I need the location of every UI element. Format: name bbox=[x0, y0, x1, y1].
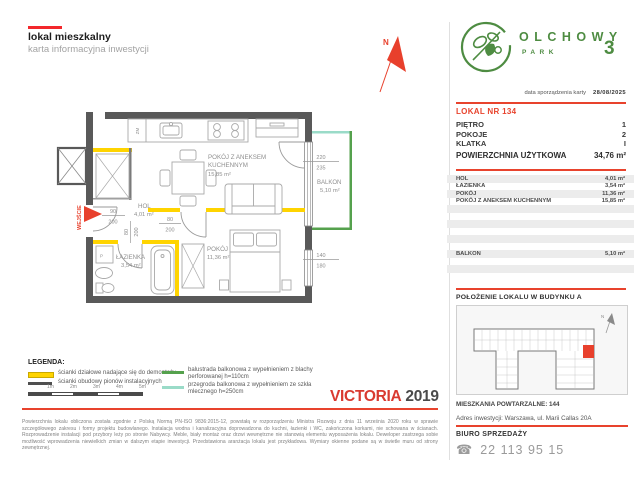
scale-bar-segment bbox=[51, 392, 74, 396]
unit-attributes: PIĘTRO 1 POKOJE 2 KLATKA I bbox=[456, 120, 626, 149]
rule bbox=[456, 425, 628, 427]
bath-label: ŁAZIENKA bbox=[116, 255, 145, 261]
table-row: ŁAZIENKA3,54 m² bbox=[447, 183, 634, 191]
table-row-empty bbox=[447, 265, 634, 273]
location-title: POŁOŻENIE LOKALU W BUDYNKU A bbox=[456, 294, 582, 301]
bedroom-window bbox=[305, 250, 313, 286]
balcony-area: 5,10 m² bbox=[320, 188, 340, 194]
phone-row: ☎22 113 95 15 bbox=[456, 442, 564, 458]
bedroom-wardrobe bbox=[182, 244, 204, 288]
brand-park: PARK bbox=[522, 49, 558, 56]
table-row-empty bbox=[447, 220, 634, 228]
north-label: N bbox=[383, 38, 389, 47]
chair bbox=[180, 150, 196, 160]
date-row: data sporządzenia karty28/08/2025 bbox=[440, 90, 626, 96]
investment-address: Adres inwestycji: Warszawa, ul. Marii Ca… bbox=[456, 415, 592, 422]
nightstand bbox=[282, 280, 291, 290]
table-row-empty bbox=[447, 205, 634, 213]
chair bbox=[160, 170, 170, 186]
scale-label: 3m bbox=[93, 384, 100, 390]
room-area-table: HOL4,01 m² ŁAZIENKA3,54 m² POKÓJ11,36 m²… bbox=[447, 175, 634, 280]
balcony-partition-cyan bbox=[312, 131, 352, 134]
attr-value: I bbox=[624, 139, 626, 149]
table-row-empty bbox=[447, 228, 634, 236]
dishwasher-label: ZM bbox=[135, 128, 140, 135]
bathtub bbox=[151, 246, 174, 294]
sales-office-label: BIURO SPRZEDAŻY bbox=[456, 431, 527, 438]
dim-bedroom-door: 80 200 bbox=[159, 217, 181, 234]
entrance-arrow-icon bbox=[84, 206, 102, 222]
svg-text:80: 80 bbox=[124, 229, 130, 235]
attr-row: POKOJE 2 bbox=[456, 130, 626, 140]
attr-label: POKOJE bbox=[456, 130, 487, 140]
table-row-empty bbox=[447, 273, 634, 281]
installation-shaft bbox=[58, 148, 86, 184]
bath-area: 3,54 m² bbox=[121, 263, 141, 269]
attr-row: KLATKA I bbox=[456, 139, 626, 149]
unit-number: LOKAL NR 134 bbox=[456, 107, 516, 116]
balcony-rail-bottom bbox=[312, 228, 352, 231]
attr-value: 2 bbox=[622, 130, 626, 140]
scale-bar-segment bbox=[120, 392, 143, 396]
legend-item: przegroda balkonowa z wypełnieniem ze sz… bbox=[188, 382, 340, 396]
developer-logo: VICTORIA2019 bbox=[330, 388, 439, 406]
scale-bar-segment bbox=[97, 392, 120, 396]
washer-label: P bbox=[100, 254, 103, 259]
scale-label: 4m bbox=[116, 384, 123, 390]
svg-text:200: 200 bbox=[134, 227, 140, 236]
pillow bbox=[257, 233, 277, 246]
svg-text:220: 220 bbox=[316, 155, 325, 161]
rule bbox=[22, 408, 438, 410]
svg-text:200: 200 bbox=[165, 228, 174, 234]
scale-label: 1m bbox=[47, 384, 54, 390]
hol-area: 4,01 m² bbox=[134, 212, 154, 218]
bathroom-sink bbox=[96, 268, 113, 279]
scale-label: 2m bbox=[70, 384, 77, 390]
living-area: 15,85 m² bbox=[208, 172, 231, 178]
attr-row: PIĘTRO 1 bbox=[456, 120, 626, 130]
rule bbox=[456, 288, 626, 290]
living-label-2: KUCHENNYM bbox=[208, 162, 248, 169]
svg-text:235: 235 bbox=[316, 166, 325, 172]
entrance-marker: WEJŚCIE bbox=[76, 205, 102, 230]
phone-number: 22 113 95 15 bbox=[480, 443, 564, 457]
hall-wardrobe bbox=[96, 154, 129, 198]
balcony-door-arc bbox=[279, 142, 305, 168]
chair bbox=[180, 196, 196, 206]
table-row-empty bbox=[447, 235, 634, 243]
brand-logo-icon bbox=[457, 18, 515, 76]
washing-machine bbox=[96, 246, 113, 263]
dim-entrance-door: 90 200 bbox=[102, 209, 125, 226]
toilet bbox=[96, 283, 114, 293]
svg-text:140: 140 bbox=[316, 253, 325, 259]
bedroom-door-arc bbox=[181, 212, 206, 237]
balcony-window bbox=[305, 142, 313, 226]
info-card-page: lokal mieszkalny karta informacyjna inwe… bbox=[0, 0, 640, 480]
table-row-empty bbox=[447, 243, 634, 251]
floor-plan: N bbox=[20, 25, 450, 345]
svg-text:N: N bbox=[601, 314, 604, 319]
entrance-label: WEJŚCIE bbox=[76, 205, 83, 230]
legend-swatch-yellow bbox=[28, 372, 54, 378]
attr-value: 1 bbox=[622, 120, 626, 130]
nightstand bbox=[220, 280, 229, 290]
north-arrow-icon: N bbox=[380, 36, 406, 92]
svg-text:180: 180 bbox=[316, 264, 325, 270]
svg-text:90: 90 bbox=[110, 209, 116, 215]
phone-icon: ☎ bbox=[456, 442, 473, 457]
developer-name: VICTORIA bbox=[330, 388, 401, 405]
usable-area-row: POWIERZCHNIA UŻYTKOWA 34,76 m² bbox=[456, 151, 626, 160]
hol-label: HOL bbox=[138, 203, 151, 210]
balcony-label: BALKON bbox=[317, 180, 341, 186]
pillow bbox=[234, 233, 254, 246]
date-value: 28/08/2025 bbox=[593, 90, 626, 96]
brand-number: 3 bbox=[604, 38, 615, 60]
balcony-rail-right bbox=[350, 131, 353, 230]
scale-bar-segment bbox=[28, 392, 51, 396]
developer-year: 2019 bbox=[405, 388, 438, 405]
date-label: data sporządzenia karty bbox=[524, 90, 586, 96]
table-row-empty bbox=[447, 258, 634, 266]
table-row: POKÓJ Z ANEKSEM KUCHENNYM15,85 m² bbox=[447, 198, 634, 206]
rule bbox=[456, 102, 626, 104]
table-row: BALKON5,10 m² bbox=[447, 250, 634, 258]
table-row: POKÓJ11,36 m² bbox=[447, 190, 634, 198]
stove bbox=[208, 121, 244, 140]
building-locator-map: N bbox=[456, 305, 628, 395]
svg-text:80: 80 bbox=[167, 217, 173, 223]
highlighted-unit bbox=[583, 345, 594, 358]
bedroom-area: 11,36 m² bbox=[207, 255, 230, 261]
scale-bar-segment bbox=[74, 392, 97, 396]
attr-label: KLATKA bbox=[456, 139, 486, 149]
table-row: HOL4,01 m² bbox=[447, 175, 634, 183]
legend-swatch-green bbox=[162, 371, 184, 374]
legend-swatch-cyan bbox=[162, 386, 184, 389]
bedroom-label: POKÓJ bbox=[207, 246, 228, 253]
repeatable-units: MIESZKANIA POWTARZALNE: 144 bbox=[456, 401, 560, 408]
svg-text:200: 200 bbox=[108, 220, 117, 226]
rule bbox=[456, 169, 626, 171]
table-row-empty bbox=[447, 213, 634, 221]
scale-label: 5m bbox=[139, 384, 146, 390]
usable-area-value: 34,76 m² bbox=[594, 151, 626, 160]
disclaimer-text: Powierzchnia lokalu obliczona została zg… bbox=[22, 419, 438, 452]
legend-title: LEGENDA: bbox=[28, 359, 65, 366]
dining-table bbox=[172, 162, 204, 194]
dim-bath-door: 80 200 bbox=[124, 221, 140, 243]
legend-item: balustrada balkonowa z wypełnieniem z bl… bbox=[188, 367, 340, 381]
usable-area-label: POWIERZCHNIA UŻYTKOWA bbox=[456, 151, 566, 160]
attr-label: PIĘTRO bbox=[456, 120, 484, 130]
living-label-1: POKÓJ Z ANEKSEM bbox=[208, 154, 266, 161]
